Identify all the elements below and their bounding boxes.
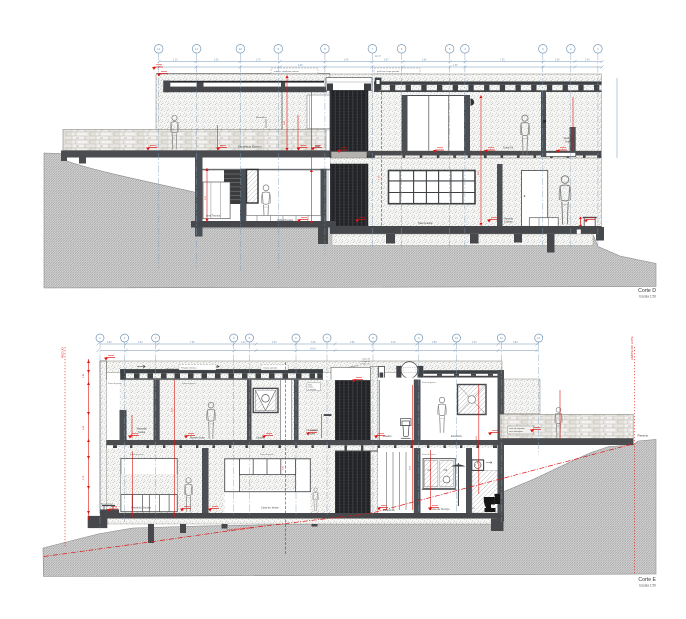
svg-text:Forro de gesso: Forro de gesso (182, 383, 196, 385)
svg-text:Coberta: Coberta (504, 221, 513, 224)
svg-text:0.97: 0.97 (384, 60, 389, 62)
svg-text:2.45: 2.45 (585, 60, 590, 62)
svg-text:2.80: 2.80 (107, 342, 112, 344)
svg-text:10: 10 (239, 47, 243, 51)
svg-text:Corte E: Corte E (638, 577, 656, 583)
svg-text:Suite 01: Suite 01 (503, 146, 514, 150)
svg-text:Escritório: Escritório (451, 434, 462, 438)
svg-text:22.47: 22.47 (375, 56, 381, 58)
svg-text:s/ caixilho: s/ caixilho (308, 389, 316, 391)
svg-text:4.40: 4.40 (391, 342, 396, 344)
svg-text:enrolar ext.: enrolar ext. (360, 363, 370, 366)
svg-text:3.90: 3.90 (311, 342, 316, 344)
svg-text:3.30: 3.30 (214, 60, 219, 62)
svg-text:Despensa: Despensa (383, 508, 395, 512)
svg-text:Forro de gesso: Forro de gesso (108, 383, 122, 385)
svg-text:Forro de gesso: Forro de gesso (422, 382, 436, 384)
svg-text:Circulação: Circulação (306, 428, 319, 432)
svg-text:Hobby/Snooker: Hobby/Snooker (277, 219, 294, 222)
svg-text:4.00: 4.00 (272, 342, 277, 344)
svg-text:caixa de vagados: caixa de vagados (509, 428, 525, 430)
svg-text:Lavabo: Lavabo (383, 434, 392, 438)
svg-text:Banco exterior: Banco exterior (101, 502, 113, 505)
svg-text:Esplanada Exterior: Esplanada Exterior (238, 145, 262, 149)
svg-text:Sala de Estar: Sala de Estar (418, 222, 433, 225)
svg-text:Área Técnica: Área Técnica (206, 215, 221, 218)
svg-text:3.80: 3.80 (350, 342, 355, 344)
svg-text:Forro de gesso: Forro de gesso (422, 454, 436, 456)
svg-text:Varanda/: Varanda/ (137, 427, 148, 431)
svg-text:7.60: 7.60 (190, 342, 195, 344)
svg-text:Escala 1:50: Escala 1:50 (639, 295, 656, 299)
svg-text:12: 12 (537, 336, 541, 340)
svg-text:urbaniz. caixilharia exterior: urbaniz. caixilharia exterior (274, 70, 299, 73)
svg-text:Casa de Jantar: Casa de Jantar (261, 506, 279, 510)
svg-text:serv. drenagem: serv. drenagem (509, 431, 523, 433)
svg-text:3.90: 3.90 (422, 60, 427, 62)
svg-text:Master Suite: Master Suite (190, 436, 205, 440)
svg-text:Bebedouro: Bebedouro (256, 116, 267, 119)
svg-text:1.35: 1.35 (453, 65, 458, 67)
svg-text:12: 12 (157, 47, 161, 51)
svg-text:I.S.: I.S. (472, 508, 476, 510)
svg-text:Suites: Suites (308, 432, 316, 436)
svg-text:3.20: 3.20 (138, 342, 143, 344)
svg-text:Suites: Suites (138, 430, 146, 434)
svg-text:Closet: Closet (256, 436, 264, 440)
svg-text:Suites: Suites (565, 140, 573, 144)
svg-text:24.10: 24.10 (310, 349, 316, 351)
svg-text:10: 10 (455, 336, 459, 340)
svg-text:Forro de gesso: Forro de gesso (260, 454, 274, 456)
svg-text:2.20: 2.20 (241, 342, 246, 344)
svg-text:7.05: 7.05 (500, 60, 505, 62)
svg-text:11: 11 (500, 336, 503, 340)
svg-text:Passeio: Passeio (638, 434, 649, 438)
svg-text:Corte D: Corte D (638, 288, 656, 294)
svg-text:3.45: 3.45 (344, 60, 349, 62)
svg-text:3.90: 3.90 (513, 342, 518, 344)
svg-text:RECUO: RECUO (61, 346, 65, 358)
svg-text:Pérgola metálica: Pérgola metálica (181, 367, 197, 370)
svg-text:perfil em chapa quinada: perfil em chapa quinada (377, 70, 400, 73)
svg-text:LIMITE DO LOTE: LIMITE DO LOTE (630, 336, 634, 360)
svg-text:1.10: 1.10 (173, 60, 178, 62)
svg-text:Área de Serviço: Área de Serviço (431, 507, 450, 511)
svg-text:Escala 1:50: Escala 1:50 (639, 584, 656, 588)
svg-text:4.05: 4.05 (298, 65, 303, 67)
svg-text:Chapa quinada: Chapa quinada (263, 368, 278, 370)
svg-text:2.90: 2.90 (555, 60, 560, 62)
svg-text:4.30: 4.30 (472, 342, 477, 344)
svg-text:1.75: 1.75 (256, 60, 261, 62)
svg-text:Vestíbulo Estúdio: Vestíbulo Estúdio (131, 506, 152, 510)
svg-text:3.80: 3.80 (432, 342, 437, 344)
svg-text:Forro de gesso: Forro de gesso (130, 454, 144, 456)
svg-text:11: 11 (195, 47, 198, 51)
svg-text:Hall: Hall (315, 145, 320, 149)
